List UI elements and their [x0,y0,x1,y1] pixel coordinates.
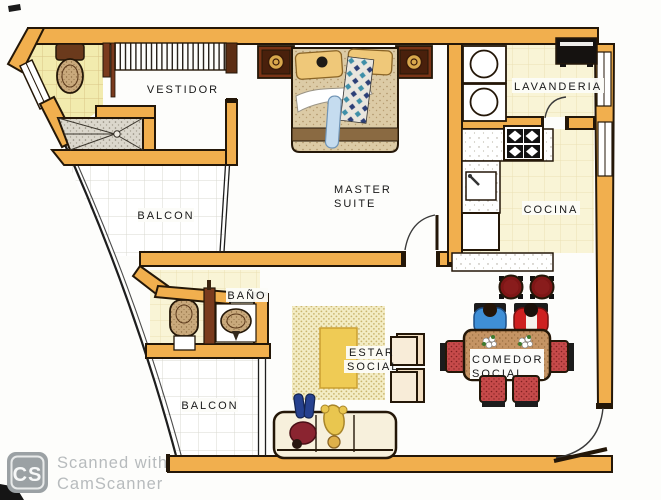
room-label-bano: BAÑO [227,289,266,302]
laundry-sink-icon [556,38,597,67]
wall-kitchen-left [448,44,462,266]
floor-plan-page: VESTIDOR BALCON MASTER SUITE LAVANDERIA … [0,0,661,500]
room-label-lavanderia: LAVANDERIA [514,81,602,93]
room-label-cocina: COCINA [524,204,579,216]
wall-laundry-bottom-right [566,117,594,129]
camscanner-logo-icon: CS [7,452,48,493]
watermark-line2: CamScanner [57,475,163,493]
toilet-icon [56,44,84,93]
room-label-master-line2: SUITE [334,198,376,210]
kitchen-sink-icon [466,172,496,200]
dryer-icon [463,84,506,121]
nightstand-left-icon [258,46,294,78]
wall-balcony-upper-top [52,150,236,165]
room-label-balcon-lower: BALCON [181,400,238,412]
person-on-bed-head [317,57,328,68]
scan-mark-top [8,4,21,12]
fridge-icon [462,213,499,250]
bar-stool-icon-1 [499,276,523,300]
watermark-line1: Scanned with [57,454,168,472]
bath-sink-icon [216,304,256,342]
shower-icon [58,118,143,150]
wall-bath-bottom [146,344,270,358]
bar-counter [452,253,553,271]
right-window-lower [598,122,612,176]
nightstand-right-icon [396,46,432,78]
room-label-comedor-line1: COMEDOR [472,354,543,366]
armchair-icon-2 [391,369,424,402]
room-label-estar-line1: ESTAR [349,347,395,359]
room-label-estar-line2: SOCIAL [347,361,399,373]
room-label-comedor-line2: SOCIAL [472,368,524,380]
stove-icon [504,126,543,160]
dining-chair-icon-bottom1 [480,376,506,407]
wall-shower-top [96,106,155,118]
room-label-master-line1: MASTER [334,184,392,196]
wall-vestidor-divider [226,100,237,165]
wall-top [28,28,598,44]
bath-toilet-icon [170,300,198,350]
floor-plan-svg: VESTIDOR BALCON MASTER SUITE LAVANDERIA … [0,0,661,500]
wall-shower-right [143,118,155,152]
room-label-vestidor: VESTIDOR [147,84,219,96]
bar-stool-icon-2 [530,276,554,300]
dining-chair-icon-bottom2 [513,376,539,407]
washer-icon [463,46,506,83]
wall-master-bottom [140,252,405,266]
entrance-door [554,408,607,461]
room-label-balcon-upper: BALCON [137,210,194,222]
master-door [405,215,437,250]
bath-partition [204,280,215,344]
bed-icon [292,48,398,152]
camscanner-logo-text: CS [13,464,43,486]
camscanner-watermark: CS Scanned with CamScanner [7,452,168,493]
